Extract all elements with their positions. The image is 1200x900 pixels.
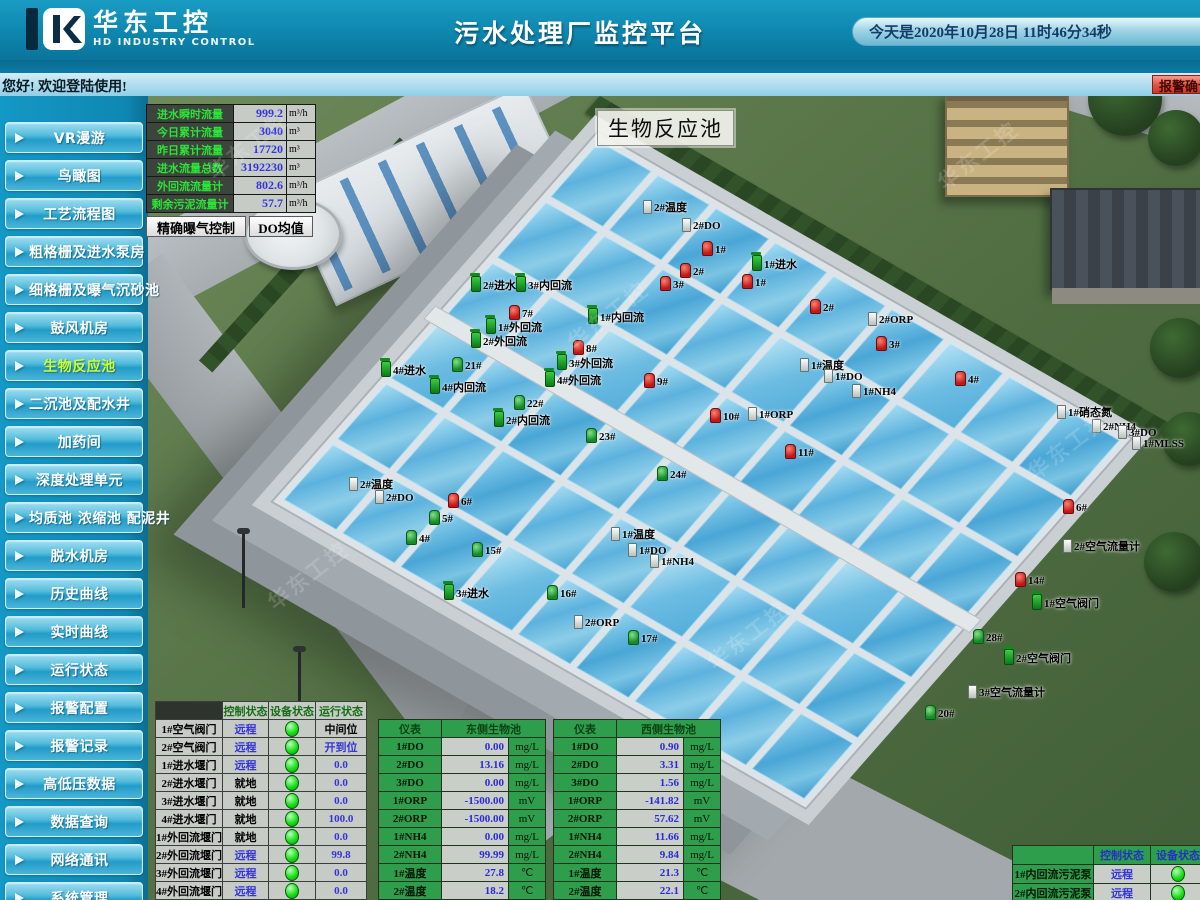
valve-run-value: 中间位 [316, 720, 366, 737]
sidebar-item[interactable]: 鼓风机房 [5, 312, 143, 343]
scene-marker[interactable]: 3# [660, 276, 684, 291]
scene-marker[interactable]: 3#内回流 [516, 276, 572, 292]
meter-unit: mg/L [684, 828, 720, 845]
sidebar-item[interactable]: 脱水机房 [5, 540, 143, 571]
scene-marker[interactable]: 5# [429, 510, 453, 525]
marker-label: 1#NH4 [661, 557, 694, 568]
marker-label: 23# [599, 432, 616, 443]
meter-value: 27.8 [442, 864, 508, 881]
marker-label: 4#内回流 [442, 383, 486, 394]
valve-ctrl-mode: 远程 [223, 864, 268, 881]
scene-marker[interactable]: 1#进水 [752, 255, 797, 271]
meter-col-header: 东侧生物池 [442, 720, 545, 737]
arrow-icon [15, 209, 29, 219]
meter-unit: ℃ [509, 882, 545, 899]
pump-name: 1#内回流污泥泵 [1013, 865, 1093, 883]
marker-label: 22# [527, 399, 544, 410]
meter-value: 18.2 [442, 882, 508, 899]
scene-marker[interactable]: 2#内回流 [494, 411, 550, 427]
meter-unit: ℃ [684, 882, 720, 899]
meter-icon [852, 384, 861, 398]
valve-name: 2#空气阀门 [156, 738, 222, 755]
meter-unit: mg/L [509, 846, 545, 863]
green-led-icon [285, 793, 299, 809]
flow-value: 57.7 [234, 195, 286, 212]
valve-status-table: 控制状态设备状态运行状态1#空气阀门远程中间位2#空气阀门远程开到位1#进水堰门… [155, 701, 367, 900]
meter-value: 99.99 [442, 846, 508, 863]
valve-icon [430, 378, 440, 394]
app-root: 华东工控 HD INDUSTRY CONTROL 污水处理厂监控平台 今天是20… [0, 0, 1200, 900]
sidebar-item-label: 数据查询 [29, 812, 130, 832]
arrow-icon [15, 817, 29, 827]
meter-unit: mg/L [509, 738, 545, 755]
flow-unit: m³ [287, 123, 315, 140]
marker-label: 3#空气流量计 [979, 688, 1045, 699]
scene-marker[interactable]: 28# [973, 629, 1003, 644]
sidebar-item[interactable]: 细格栅及曝气沉砂池 [5, 274, 143, 305]
meter-icon [611, 527, 620, 541]
marker-label: 4# [419, 534, 430, 545]
marker-label: 2#DO [386, 493, 414, 504]
scene-marker[interactable]: 15# [472, 542, 502, 557]
scene-marker[interactable]: 2#DO [375, 490, 414, 504]
marker-label: 10# [723, 412, 740, 423]
green-led-icon [285, 811, 299, 827]
scene-marker[interactable]: 6# [448, 493, 472, 508]
valve-run-value: 0.0 [316, 882, 366, 899]
arrow-icon [15, 779, 29, 789]
marker-label: 6# [461, 497, 472, 508]
meter-icon [1132, 436, 1141, 450]
pump-icon [925, 705, 936, 720]
marker-label: 1#ORP [759, 410, 793, 421]
flow-data-panel: 进水瞬时流量999.2m³/h今日累计流量3040m³昨日累计流量17720m³… [146, 104, 316, 237]
green-led-icon [285, 829, 299, 845]
company-logo-icon [43, 8, 85, 50]
sidebar-item-label: 深度处理单元 [29, 470, 130, 490]
scene-marker[interactable]: 2#DO [682, 218, 721, 232]
valve-col-header: 设备状态 [269, 702, 315, 719]
pump-ctrl-mode: 远程 [1094, 884, 1150, 900]
meter-unit: mg/L [509, 774, 545, 791]
scene-marker[interactable]: 4# [955, 371, 979, 386]
sidebar-item-label: 运行状态 [29, 660, 130, 680]
marker-label: 1#DO [835, 372, 863, 383]
marker-label: 9# [657, 377, 668, 388]
meter-value: 57.62 [617, 810, 683, 827]
meter-unit: mg/L [684, 846, 720, 863]
sidebar-item[interactable]: 加药间 [5, 426, 143, 457]
meter-value: 0.00 [442, 774, 508, 791]
marker-label: 2#ORP [879, 315, 913, 326]
valve-device-status [269, 846, 315, 863]
meter-name: 2#温度 [379, 882, 441, 899]
scene-marker[interactable]: 8# [573, 340, 597, 355]
sidebar-item[interactable]: 工艺流程图 [5, 198, 143, 229]
scene-marker[interactable]: 24# [657, 466, 687, 481]
green-led-icon [1171, 866, 1185, 882]
meter-name: 3#DO [554, 774, 616, 791]
scene-marker[interactable]: 4# [406, 530, 430, 545]
meter-name: 3#DO [379, 774, 441, 791]
meter-name: 1#温度 [554, 864, 616, 881]
valve-icon [444, 584, 454, 600]
meter-unit: mV [509, 810, 545, 827]
meter-unit: ℃ [509, 864, 545, 881]
meter-unit: mV [509, 792, 545, 809]
sensor-icon [660, 276, 671, 291]
scene-marker[interactable]: 2#ORP [868, 312, 913, 326]
marker-label: 1#NH4 [863, 387, 896, 398]
meter-value: 9.84 [617, 846, 683, 863]
valve-ctrl-mode: 远程 [223, 738, 268, 755]
scene-marker[interactable]: 16# [547, 585, 577, 600]
arrow-icon [15, 323, 29, 333]
valve-icon [1004, 649, 1014, 665]
scene-marker[interactable]: 23# [586, 428, 616, 443]
sidebar-item[interactable]: 报警记录 [5, 730, 143, 761]
sidebar-item-label: VR漫游 [29, 128, 130, 148]
sidebar-item-label: 细格栅及曝气沉砂池 [29, 280, 160, 300]
sidebar-item-label: 脱水机房 [29, 546, 130, 566]
meter-name: 2#ORP [379, 810, 441, 827]
flow-rows: 进水瞬时流量999.2m³/h今日累计流量3040m³昨日累计流量17720m³… [146, 104, 316, 213]
marker-label: 20# [938, 709, 955, 720]
meter-name: 2#ORP [554, 810, 616, 827]
meter-icon [628, 543, 637, 557]
valve-name: 3#外回流堰门 [156, 864, 222, 881]
scene-marker[interactable]: 1#内回流 [588, 308, 644, 324]
pump-icon [586, 428, 597, 443]
valve-run-value: 开到位 [316, 738, 366, 755]
valve-run-value: 0.0 [316, 828, 366, 845]
sidebar-item[interactable]: 运行状态 [5, 654, 143, 685]
scene-marker[interactable]: 17# [628, 630, 658, 645]
arrow-icon [15, 589, 29, 599]
valve-icon [545, 371, 555, 387]
scene-marker[interactable]: 2#空气阀门 [1004, 649, 1071, 665]
scene-marker[interactable]: 3#空气流量计 [968, 685, 1045, 699]
arrow-icon [15, 703, 29, 713]
sidebar-item-label: 二沉池及配水井 [29, 394, 131, 414]
logo-en: HD INDUSTRY CONTROL [93, 37, 256, 48]
scene-marker[interactable]: 20# [925, 705, 955, 720]
green-led-icon [285, 883, 299, 899]
header: 华东工控 HD INDUSTRY CONTROL 污水处理厂监控平台 今天是20… [0, 0, 1200, 60]
sidebar-item[interactable]: 二沉池及配水井 [5, 388, 143, 419]
sidebar-item-label: 粗格栅及进水泵房 [29, 242, 145, 262]
scene-marker[interactable]: 4#外回流 [545, 371, 601, 387]
valve-icon [471, 276, 481, 292]
meter-unit: mg/L [684, 774, 720, 791]
marker-label: 2#空气流量计 [1074, 542, 1140, 553]
valve-name: 3#进水堰门 [156, 792, 222, 809]
valve-icon [752, 255, 762, 271]
flow-unit: m³/h [287, 177, 315, 194]
sidebar-item-label: 网络通讯 [29, 850, 130, 870]
meter-name: 1#DO [554, 738, 616, 755]
marker-label: 1#内回流 [600, 313, 644, 324]
pump-ctrl-mode: 远程 [1094, 865, 1150, 883]
meter-table-west: 仪表西侧生物池1#DO0.90mg/L2#DO3.31mg/L3#DO1.56m… [553, 719, 721, 900]
meter-icon [349, 477, 358, 491]
valve-icon [516, 276, 526, 292]
meter-name: 1#NH4 [554, 828, 616, 845]
sidebar-item-label: 高低压数据 [29, 774, 130, 794]
flow-value: 17720 [234, 141, 286, 158]
valve-name: 4#进水堰门 [156, 810, 222, 827]
meter-name: 2#温度 [554, 882, 616, 899]
valve-col-header [156, 702, 222, 719]
valve-device-status [269, 756, 315, 773]
scene-marker[interactable]: 3# [876, 336, 900, 351]
scene-marker[interactable]: 2# [810, 299, 834, 314]
scene-marker[interactable]: 22# [514, 395, 544, 410]
marker-label: 6# [1076, 503, 1087, 514]
scene-marker[interactable]: 1#ORP [748, 407, 793, 421]
sidebar-item[interactable]: 系统管理 [5, 882, 143, 900]
marker-label: 2#温度 [654, 203, 687, 214]
valve-device-status [269, 828, 315, 845]
green-led-icon [1171, 885, 1185, 900]
valve-ctrl-mode: 就地 [223, 774, 268, 791]
flow-value: 3192230 [234, 159, 286, 176]
meter-icon [968, 685, 977, 699]
sidebar-item[interactable]: 鸟瞰图 [5, 160, 143, 191]
scene-marker[interactable]: 21# [452, 357, 482, 372]
scene-marker[interactable]: 10# [710, 408, 740, 423]
valve-ctrl-mode: 就地 [223, 792, 268, 809]
sidebar-item[interactable]: 深度处理单元 [5, 464, 143, 495]
scene-marker[interactable]: 2#空气流量计 [1063, 539, 1140, 553]
pump-icon [429, 510, 440, 525]
scene-marker[interactable]: 2#外回流 [471, 332, 527, 348]
meter-icon [682, 218, 691, 232]
valve-run-value: 99.8 [316, 846, 366, 863]
green-led-icon [285, 865, 299, 881]
valve-run-value: 100.0 [316, 810, 366, 827]
flow-label: 外回流流量计 [147, 177, 233, 194]
meter-unit: mV [684, 810, 720, 827]
valve-ctrl-mode: 就地 [223, 828, 268, 845]
sidebar-item[interactable]: 均质池 浓缩池 配泥井 [5, 502, 143, 533]
valve-run-value: 0.0 [316, 756, 366, 773]
marker-label: 17# [641, 634, 658, 645]
valve-run-value: 0.0 [316, 774, 366, 791]
valve-icon [494, 411, 504, 427]
pump-icon [452, 357, 463, 372]
meter-value: 0.00 [442, 738, 508, 755]
sensor-icon [810, 299, 821, 314]
valve-ctrl-mode: 远程 [223, 756, 268, 773]
scene-marker[interactable]: 1# [742, 274, 766, 289]
scene-marker[interactable]: 11# [785, 444, 814, 459]
sensor-icon [573, 340, 584, 355]
sidebar-item[interactable]: 报警配置 [5, 692, 143, 723]
do-average-button[interactable]: DO均值 [249, 216, 313, 237]
scene-marker[interactable]: 2#ORP [574, 615, 619, 629]
sidebar-item[interactable]: 历史曲线 [5, 578, 143, 609]
sidebar-item[interactable]: 高低压数据 [5, 768, 143, 799]
company-logo: 华东工控 HD INDUSTRY CONTROL [26, 8, 256, 50]
precise-aeration-button[interactable]: 精确曝气控制 [146, 216, 246, 237]
marker-label: 3#进水 [456, 589, 489, 600]
arrow-icon [15, 475, 29, 485]
meter-name: 1#ORP [379, 792, 441, 809]
meter-icon [375, 490, 384, 504]
marker-label: 5# [442, 514, 453, 525]
sensor-icon [702, 241, 713, 256]
scene-marker[interactable]: 4#内回流 [430, 378, 486, 394]
valve-name: 2#外回流堰门 [156, 846, 222, 863]
marker-label: 1#空气阀门 [1044, 599, 1099, 610]
marker-label: 1# [715, 245, 726, 256]
marker-label: 1#MLSS [1143, 439, 1184, 450]
pump-icon [973, 629, 984, 644]
arrow-icon [15, 627, 29, 637]
sidebar-item[interactable]: 网络通讯 [5, 844, 143, 875]
flow-value: 999.2 [234, 105, 286, 122]
sidebar-item-label: 工艺流程图 [29, 204, 130, 224]
meter-icon [643, 200, 652, 214]
valve-run-value: 0.0 [316, 864, 366, 881]
meter-value: 1.56 [617, 774, 683, 791]
marker-label: 2# [823, 303, 834, 314]
meter-value: -1500.00 [442, 810, 508, 827]
meter-value: -1500.00 [442, 792, 508, 809]
marker-label: 16# [560, 589, 577, 600]
arrow-icon [15, 893, 29, 900]
green-led-icon [285, 847, 299, 863]
sensor-icon [448, 493, 459, 508]
arrow-icon [15, 133, 29, 143]
meter-icon [1118, 425, 1127, 439]
meter-icon [650, 554, 659, 568]
meter-value: -141.82 [617, 792, 683, 809]
sidebar-item[interactable]: 粗格栅及进水泵房 [5, 236, 143, 267]
scene-marker[interactable]: 4#进水 [381, 361, 426, 377]
sidebar-item[interactable]: 生物反应池 [5, 350, 143, 381]
sidebar-nav: VR漫游鸟瞰图工艺流程图粗格栅及进水泵房细格栅及曝气沉砂池鼓风机房生物反应池二沉… [0, 96, 148, 900]
sensor-icon [955, 371, 966, 386]
meter-icon [1092, 419, 1101, 433]
flow-value: 802.6 [234, 177, 286, 194]
sidebar-item-label: 历史曲线 [29, 584, 130, 604]
meter-icon [1057, 405, 1066, 419]
flow-buttons: 精确曝气控制 DO均值 [146, 216, 316, 237]
sensor-icon [742, 274, 753, 289]
sidebar-item[interactable]: 数据查询 [5, 806, 143, 837]
scene-marker[interactable]: 2#温度 [643, 200, 687, 214]
valve-name: 4#外回流堰门 [156, 882, 222, 899]
arrow-icon [15, 437, 29, 447]
sidebar-item[interactable]: VR漫游 [5, 122, 143, 153]
arrow-icon [15, 361, 29, 371]
sensor-icon [1063, 499, 1074, 514]
page-title: 污水处理厂监控平台 [454, 14, 706, 50]
scene-marker[interactable]: 9# [644, 373, 668, 388]
marker-label: 2#进水 [483, 281, 516, 292]
marker-label: 1#硝态氮 [1068, 408, 1112, 419]
meter-unit: mg/L [509, 828, 545, 845]
sidebar-item-label: 鸟瞰图 [29, 166, 130, 186]
flow-label: 进水流量总数 [147, 159, 233, 176]
meter-col-header: 仪表 [379, 720, 441, 737]
pump-device-status [1151, 884, 1200, 900]
meter-icon [800, 358, 809, 372]
welcome-bar: 您好! 欢迎登陆使用! 报警确认 [0, 73, 1200, 96]
flow-label: 进水瞬时流量 [147, 105, 233, 122]
valve-icon [381, 361, 391, 377]
meter-unit: mg/L [684, 738, 720, 755]
alarm-ack-button[interactable]: 报警确认 [1152, 75, 1200, 94]
meter-icon [824, 369, 833, 383]
valve-icon [557, 354, 567, 370]
meter-value: 11.66 [617, 828, 683, 845]
scene-marker[interactable]: 1#硝态氮 [1057, 405, 1112, 419]
green-led-icon [285, 775, 299, 791]
scene-title: 生物反应池 [597, 110, 734, 146]
scene-marker[interactable]: 1#NH4 [852, 384, 896, 398]
valve-ctrl-mode: 就地 [223, 810, 268, 827]
scene-marker[interactable]: 14# [1015, 572, 1045, 587]
scene-marker[interactable]: 1# [702, 241, 726, 256]
arrow-icon [15, 551, 29, 561]
scene-marker[interactable]: 1#空气阀门 [1032, 594, 1099, 610]
flow-label: 剩余污泥流量计 [147, 195, 233, 212]
meter-value: 0.00 [442, 828, 508, 845]
flow-unit: m³ [287, 141, 315, 158]
marker-label: 4# [968, 375, 979, 386]
meter-name: 2#DO [554, 756, 616, 773]
meter-table-east: 仪表东侧生物池1#DO0.00mg/L2#DO13.16mg/L3#DO0.00… [378, 719, 546, 900]
marker-label: 28# [986, 633, 1003, 644]
pump-icon [406, 530, 417, 545]
marker-label: 1# [755, 278, 766, 289]
pump-device-status [1151, 865, 1200, 883]
sensor-icon [644, 373, 655, 388]
sidebar-item-label: 加药间 [29, 432, 130, 452]
scene-marker[interactable]: 1#NH4 [650, 554, 694, 568]
marker-label: 1#温度 [622, 530, 655, 541]
meter-value: 13.16 [442, 756, 508, 773]
arrow-icon [15, 285, 29, 295]
scene-marker[interactable]: 2#进水 [471, 276, 516, 292]
meter-value: 0.90 [617, 738, 683, 755]
pump-icon [628, 630, 639, 645]
meter-col-header: 西侧生物池 [617, 720, 720, 737]
pump-icon [514, 395, 525, 410]
scene-marker[interactable]: 1#DO [824, 369, 863, 383]
scene-marker[interactable]: 6# [1063, 499, 1087, 514]
valve-col-header: 控制状态 [223, 702, 268, 719]
arrow-icon [15, 665, 29, 675]
valve-icon [471, 332, 481, 348]
scene-marker[interactable]: 3#进水 [444, 584, 489, 600]
scene-marker[interactable]: 1#温度 [611, 527, 655, 541]
flow-unit: m³/h [287, 105, 315, 122]
marker-label: 2#外回流 [483, 337, 527, 348]
sidebar-item-label: 鼓风机房 [29, 318, 130, 338]
scene-marker[interactable]: 1#MLSS [1132, 436, 1184, 450]
scene-marker[interactable]: 3#外回流 [557, 354, 613, 370]
valve-col-header: 运行状态 [316, 702, 366, 719]
sidebar-item[interactable]: 实时曲线 [5, 616, 143, 647]
marker-label: 1#进水 [764, 260, 797, 271]
arrow-icon [15, 513, 29, 523]
flow-label: 今日累计流量 [147, 123, 233, 140]
scene-marker[interactable]: 2#温度 [349, 477, 393, 491]
